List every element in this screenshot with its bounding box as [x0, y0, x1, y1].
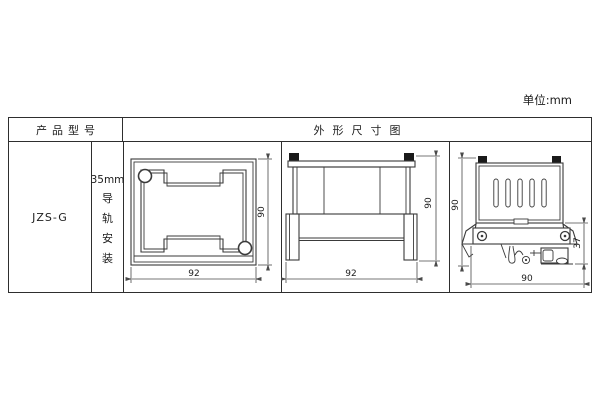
side-view-outline	[286, 153, 417, 260]
side-view-height-dimension: 90	[416, 156, 440, 261]
front-view-height-value: 90	[257, 206, 267, 218]
mount-tab	[404, 153, 414, 161]
screw-icon	[139, 170, 152, 183]
rail-view-drawing: 90 37 90	[449, 143, 593, 293]
table-header-row: 产品型号 外形尺寸图	[9, 118, 591, 142]
mounting-char: 轨	[102, 209, 113, 229]
screw-icon	[239, 242, 252, 255]
mounting-char: 导	[102, 189, 113, 209]
rail-view-width-value: 90	[521, 274, 533, 284]
din-rail-clip	[501, 244, 573, 264]
mounting-char: 装	[102, 249, 113, 269]
dimension-table: 产品型号 外形尺寸图 JZS-G 35mm 导 轨 安 装	[8, 117, 592, 293]
unit-label: 单位:mm	[523, 92, 572, 108]
rail-view-height-value: 90	[451, 199, 461, 211]
mounting-type-cell: 35mm 导 轨 安 装	[91, 142, 124, 293]
header-product-model: 产品型号	[9, 118, 123, 141]
header-outline-diagram: 外形尺寸图	[123, 118, 591, 141]
front-view-outline	[131, 159, 256, 265]
vent-slots	[494, 179, 546, 207]
rail-view-clip-depth-value: 37	[573, 237, 583, 248]
front-view-height-dimension: 90	[257, 159, 272, 265]
front-view-width-value: 92	[188, 269, 199, 279]
product-model-value: JZS-G	[9, 142, 91, 293]
page: 单位:mm 产品型号 外形尺寸图 JZS-G 35mm 导 轨 安 装	[0, 0, 600, 400]
mount-tab	[552, 156, 561, 163]
mount-tab	[289, 153, 299, 161]
front-view-width-dimension: 92	[131, 267, 256, 283]
front-view-drawing: 90 92	[121, 143, 281, 293]
side-view-drawing: 90 92	[281, 143, 449, 293]
mount-tab	[478, 156, 487, 163]
side-view-height-value: 90	[424, 197, 434, 209]
rail-view-height-dimension: 90	[451, 158, 476, 266]
rail-view-outline	[462, 156, 577, 264]
mounting-size: 35mm	[91, 171, 125, 189]
side-view-width-dimension: 92	[286, 262, 417, 283]
mounting-char: 安	[102, 229, 113, 249]
side-view-width-value: 92	[345, 269, 356, 279]
